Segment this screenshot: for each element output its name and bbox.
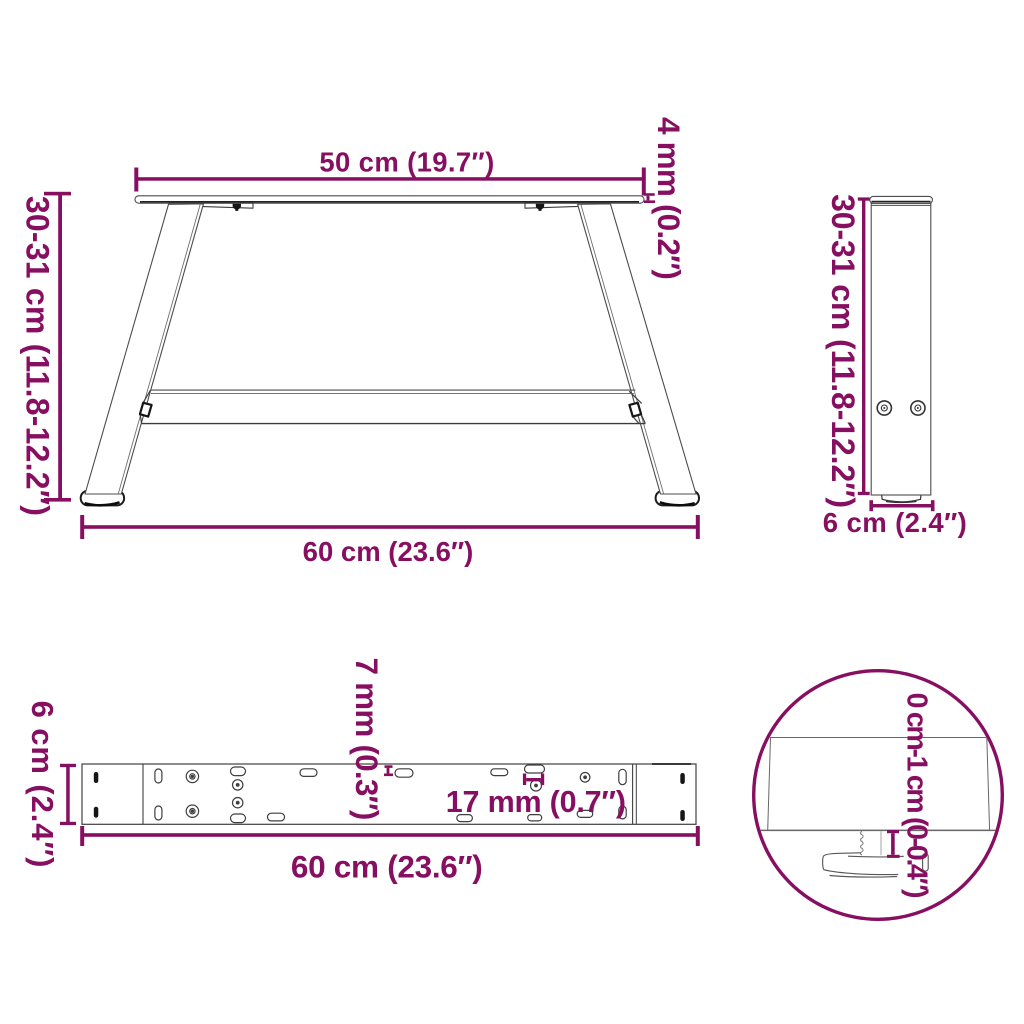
svg-text:4 mm (0.2″): 4 mm (0.2″): [651, 117, 687, 279]
svg-text:30-31 cm (11.8-12.2″): 30-31 cm (11.8-12.2″): [825, 194, 861, 508]
svg-text:0 cm-1 cm (0-0.4″): 0 cm-1 cm (0-0.4″): [900, 693, 932, 898]
svg-text:60 cm (23.6″): 60 cm (23.6″): [303, 536, 474, 567]
svg-text:17 mm (0.7″): 17 mm (0.7″): [446, 785, 626, 819]
svg-text:7 mm (0.3″): 7 mm (0.3″): [349, 657, 385, 819]
svg-text:50 cm (19.7″): 50 cm (19.7″): [319, 146, 494, 177]
svg-text:6 cm (2.4″): 6 cm (2.4″): [25, 701, 60, 869]
svg-text:30-31 cm (11.8-12.2″): 30-31 cm (11.8-12.2″): [20, 196, 56, 516]
svg-text:6 cm (2.4″): 6 cm (2.4″): [823, 507, 967, 538]
svg-text:60 cm (23.6″): 60 cm (23.6″): [291, 849, 483, 885]
